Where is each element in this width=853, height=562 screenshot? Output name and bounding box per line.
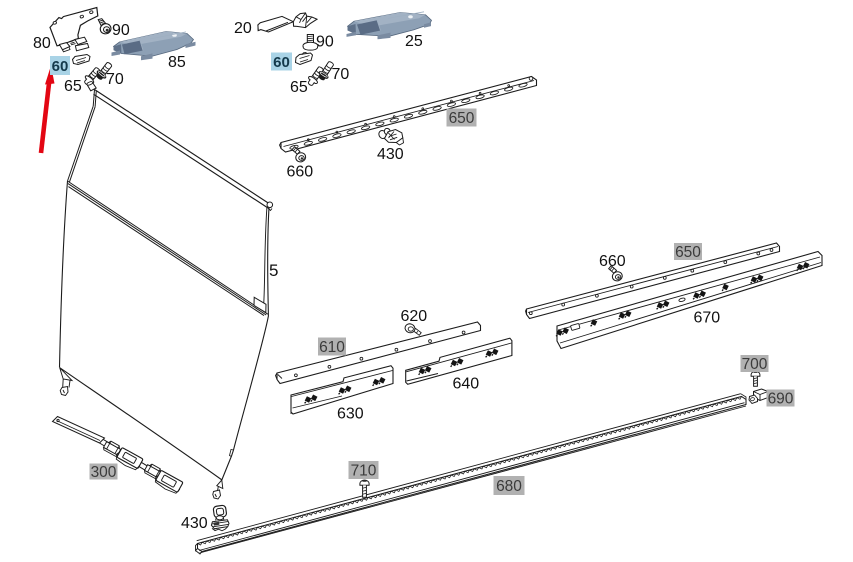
svg-text:610: 610 <box>319 339 345 356</box>
svg-text:620: 620 <box>401 308 428 325</box>
svg-text:650: 650 <box>675 244 701 261</box>
svg-text:690: 690 <box>768 391 794 408</box>
svg-text:710: 710 <box>351 463 377 480</box>
svg-text:430: 430 <box>377 146 404 163</box>
svg-text:670: 670 <box>694 310 721 327</box>
svg-text:700: 700 <box>742 356 768 373</box>
svg-text:60: 60 <box>52 58 69 75</box>
svg-text:65: 65 <box>290 79 308 96</box>
svg-text:640: 640 <box>453 376 480 393</box>
svg-text:80: 80 <box>33 35 51 52</box>
svg-text:70: 70 <box>106 71 124 88</box>
svg-text:20: 20 <box>234 20 252 37</box>
svg-text:5: 5 <box>269 261 278 280</box>
svg-text:430: 430 <box>181 515 208 532</box>
svg-text:85: 85 <box>168 54 186 71</box>
svg-text:630: 630 <box>337 406 364 423</box>
svg-text:650: 650 <box>449 110 475 127</box>
svg-text:660: 660 <box>599 253 626 270</box>
svg-text:60: 60 <box>273 54 290 71</box>
svg-text:25: 25 <box>405 33 423 50</box>
svg-text:300: 300 <box>91 464 117 481</box>
svg-text:90: 90 <box>316 34 334 51</box>
svg-text:65: 65 <box>64 78 82 95</box>
svg-text:680: 680 <box>496 478 522 495</box>
svg-text:70: 70 <box>332 66 350 83</box>
svg-text:90: 90 <box>112 22 130 39</box>
svg-text:660: 660 <box>287 164 314 181</box>
